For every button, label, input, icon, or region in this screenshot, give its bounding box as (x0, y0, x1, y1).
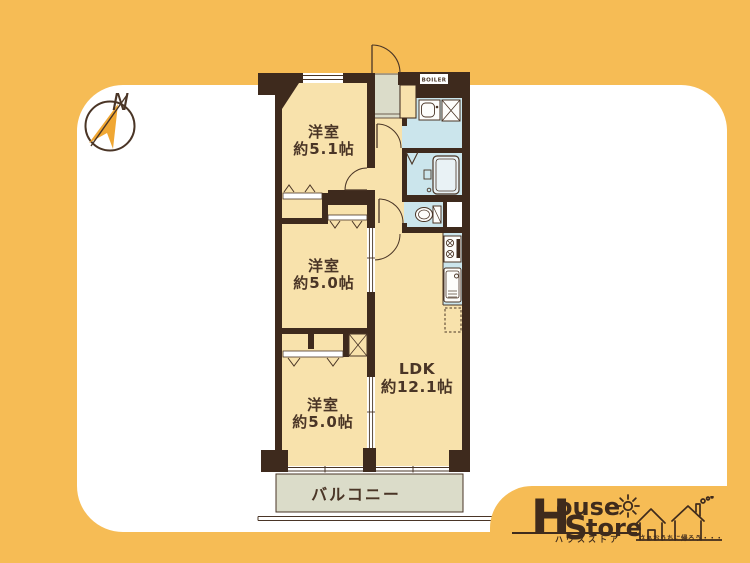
stove-icon (444, 236, 461, 262)
compass-north-label: N (112, 90, 129, 116)
washer-pan-icon (442, 100, 460, 121)
toilet-icon (416, 206, 442, 223)
bedroom3-name: 洋室 (307, 396, 339, 414)
refrigerator-space (445, 308, 461, 332)
balcony-label: バルコニー (311, 485, 401, 504)
shoe-cabinet (400, 85, 416, 118)
boiler-box: BOILER (420, 74, 448, 84)
entrance-door-icon (372, 45, 400, 73)
brand-logo: H ouse S tore (490, 486, 750, 563)
window-top (303, 73, 343, 83)
bedroom1-name: 洋室 (308, 123, 340, 141)
logo-underline (512, 532, 637, 534)
sliding-door-bedroom3 (367, 377, 375, 448)
entrance-area (373, 74, 402, 118)
washbasin-icon (419, 100, 440, 120)
balcony-railing (258, 517, 497, 521)
ldk-size: 約12.1帖 (381, 377, 453, 396)
bedroom2-size: 約5.0帖 (293, 274, 355, 292)
bedroom2-name: 洋室 (308, 257, 340, 275)
floor-plan: BOILER (250, 40, 500, 522)
pipe-space (446, 202, 462, 227)
ldk-name: LDK (399, 360, 436, 378)
logo-slogan: さぁおうちに帰ろう・・・ (639, 535, 723, 542)
window-balcony-left (288, 466, 363, 473)
boiler-label: BOILER (422, 78, 447, 84)
kitchen-sink-icon (444, 268, 461, 302)
page: N (0, 0, 750, 563)
window-balcony-right (376, 466, 449, 473)
bedroom1-size: 約5.1帖 (293, 140, 355, 158)
sliding-door-bedroom2 (367, 228, 375, 292)
logo-kana: ハウスストア (555, 536, 621, 544)
compass-icon: N (80, 82, 142, 154)
balcony: バルコニー (276, 474, 463, 512)
bedroom3-size: 約5.0帖 (292, 413, 354, 431)
